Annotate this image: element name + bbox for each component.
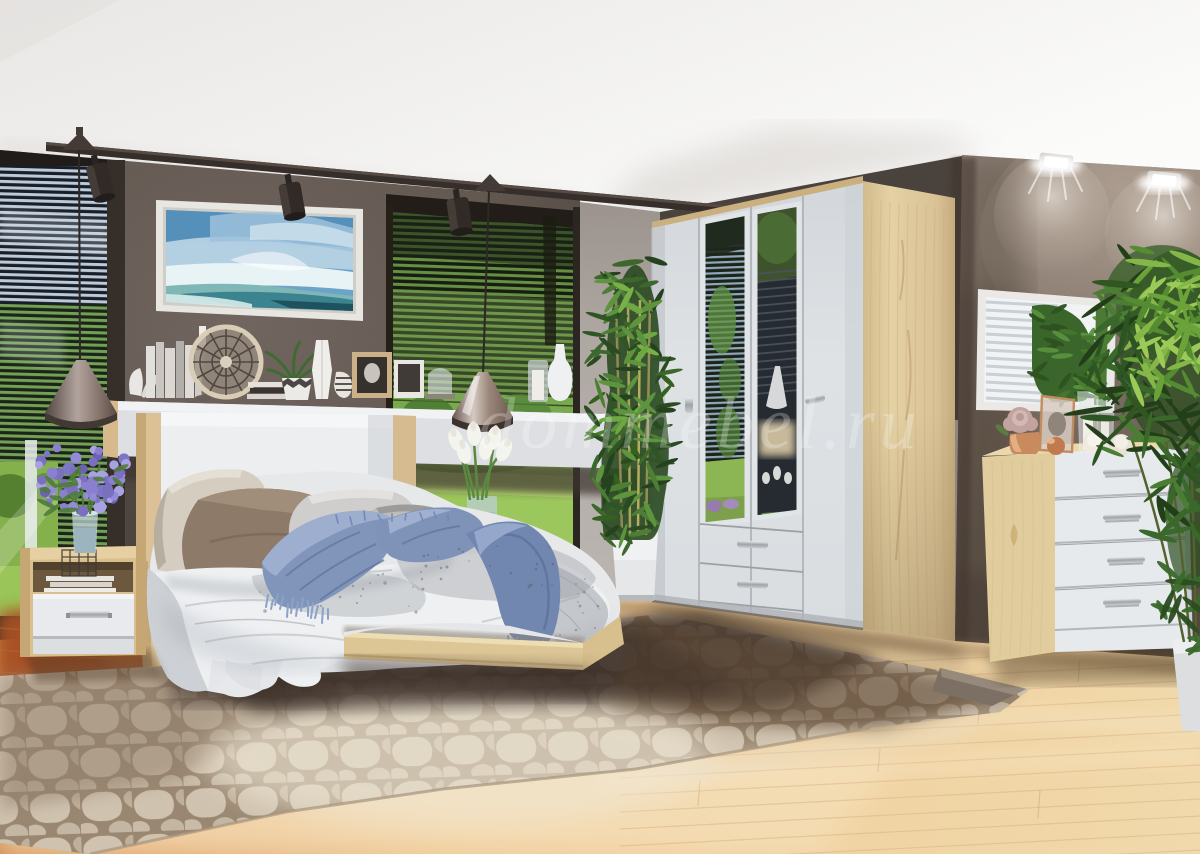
svg-text:dommebel.ru: dommebel.ru [478,383,921,465]
